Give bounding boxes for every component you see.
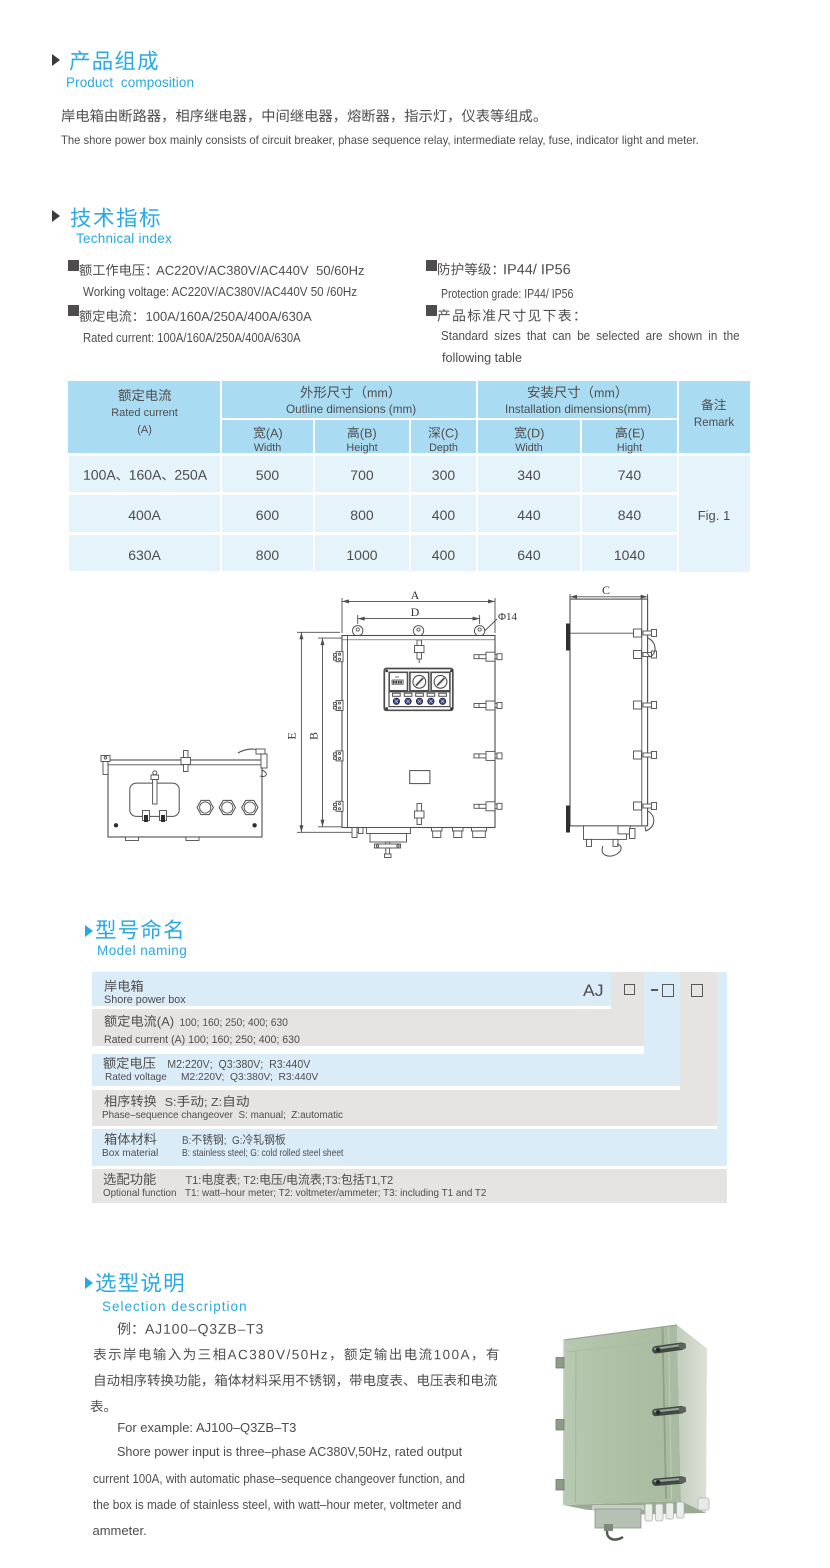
svg-text:B: B [307,732,321,740]
svg-text:E: E [285,732,299,739]
svg-text:A: A [411,588,420,602]
svg-text:D: D [411,605,420,619]
svg-text:Φ14: Φ14 [498,611,518,623]
svg-text:C: C [602,585,610,597]
